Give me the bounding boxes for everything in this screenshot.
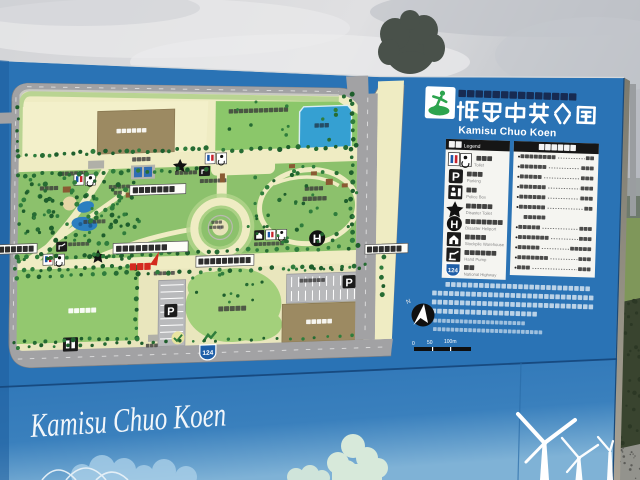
svg-text:Toilet: Toilet [474,162,485,167]
svg-text:P: P [167,306,174,318]
svg-text:Disaster Heliport: Disaster Heliport [465,226,497,232]
svg-text:P: P [345,277,352,289]
svg-text:National Highway: National Highway [464,272,498,278]
svg-text:Disaster Toilet: Disaster Toilet [466,210,493,216]
svg-text:Police Box: Police Box [466,194,487,200]
svg-text:P: P [452,170,460,184]
svg-text:H: H [450,219,458,231]
svg-text:0: 0 [412,341,415,347]
svg-text:H: H [313,232,322,246]
svg-text:100m: 100m [444,339,457,345]
svg-text:124: 124 [448,268,459,274]
svg-text:Hand Pump: Hand Pump [464,257,487,263]
svg-text:50: 50 [427,340,433,346]
svg-text:Parking: Parking [467,178,482,183]
svg-text:Legend: Legend [464,143,481,150]
svg-text:124: 124 [202,350,213,357]
